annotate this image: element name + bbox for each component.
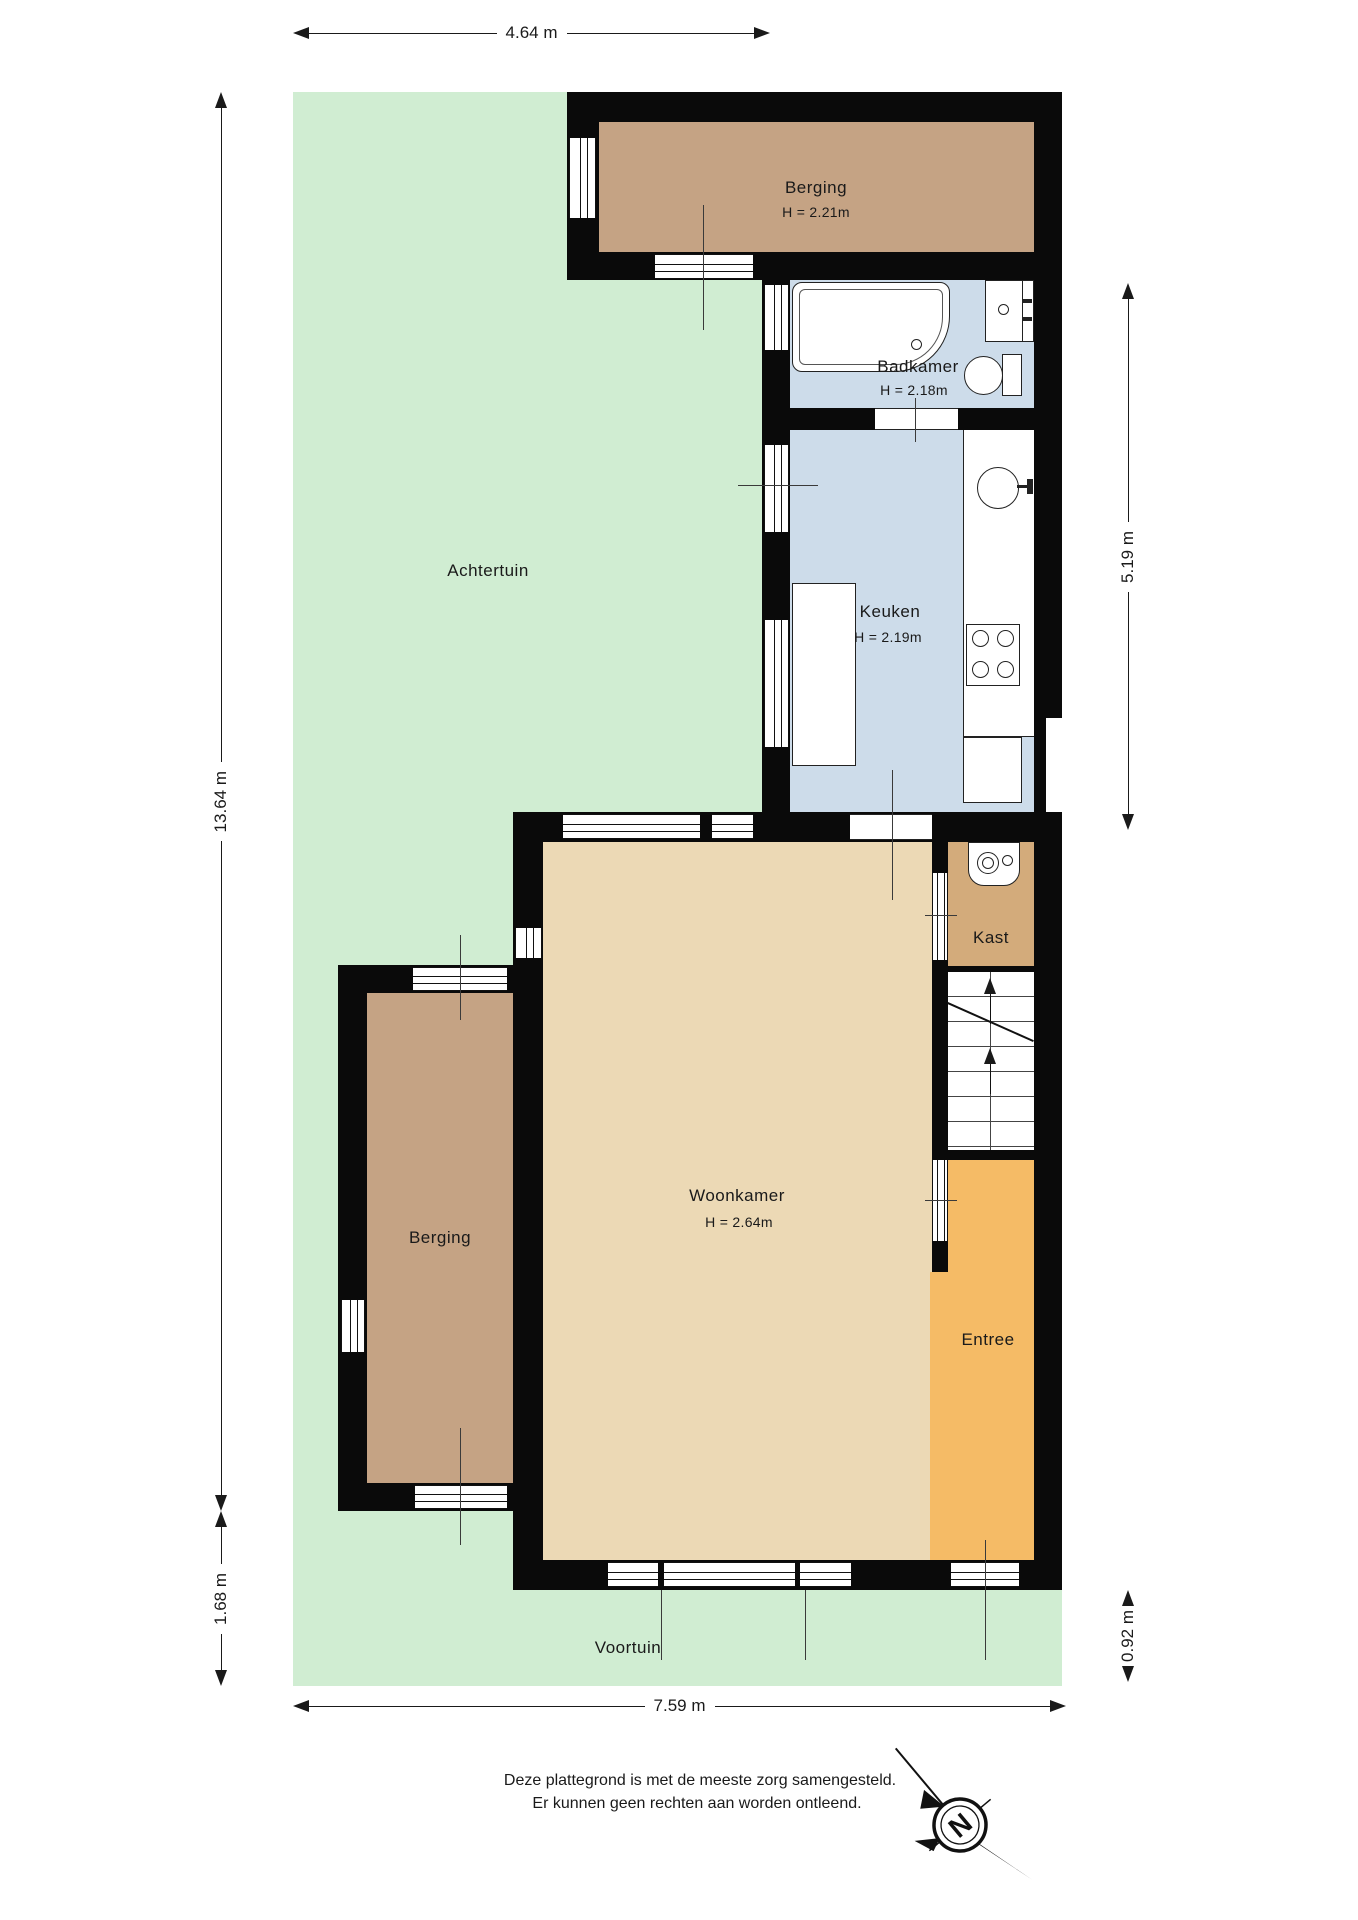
measure-line — [460, 1428, 461, 1545]
disclaimer-line-2: Er kunnen geen rechten aan worden ontlee… — [532, 1795, 861, 1813]
measure-line — [460, 935, 461, 1020]
dimension-left: 13.64 m — [211, 92, 231, 1511]
right-wall-gap — [1046, 718, 1062, 812]
room-label-kast: Kast — [973, 928, 1009, 948]
room-height-badkamer: H = 2.18m — [880, 382, 948, 398]
dimension-top: 4.64 m — [293, 24, 770, 42]
room-label-berging-top: Berging — [785, 178, 847, 198]
dimension-left-bottom: 1.68 m — [211, 1511, 231, 1686]
measure-line — [703, 205, 704, 330]
berging-left-south-window — [415, 1485, 507, 1509]
wall-right-outer — [1034, 92, 1062, 1590]
woonkamer-north-window-1 — [563, 814, 700, 839]
keuken-west-window-2 — [764, 620, 789, 747]
dimension-top-label: 4.64 m — [497, 23, 567, 43]
room-label-entree: Entree — [961, 1330, 1014, 1350]
dimension-right-bottom: 0.92 m — [1118, 1590, 1138, 1686]
kitchen-sink-tap-base — [1027, 479, 1033, 494]
stove — [966, 624, 1020, 686]
stairs-bottom-wall — [948, 1150, 1034, 1160]
washbasin — [985, 280, 1034, 342]
disclaimer-line-1: Deze plattegrond is met de meeste zorg s… — [504, 1772, 896, 1790]
woonkamer-south-window-3 — [800, 1562, 851, 1587]
room-label-achtertuin: Achtertuin — [447, 561, 529, 581]
toilet-bowl — [964, 356, 1003, 395]
keuken-woonkamer-opening — [850, 814, 932, 840]
staircase — [948, 972, 1034, 1150]
kitchen-cabinet — [963, 737, 1022, 803]
kitchen-island — [792, 583, 856, 766]
woonkamer-west-window — [515, 928, 542, 958]
dimension-bottom: 7.59 m — [293, 1697, 1066, 1715]
woonkamer-north-window-2 — [712, 814, 753, 839]
measure-line — [925, 915, 957, 916]
dimension-left-label: 13.64 m — [211, 762, 231, 841]
room-height-woonkamer: H = 2.64m — [705, 1214, 773, 1230]
berging-top-south-window — [655, 254, 753, 279]
measure-line — [738, 485, 818, 486]
kast-bottom-wall — [948, 966, 1034, 972]
berging-left-west-window — [341, 1300, 365, 1352]
floorplan-canvas: Berging H = 2.21m Badkamer H = 2.18m Keu… — [0, 0, 1358, 1920]
dimension-right-label: 5.19 m — [1118, 522, 1138, 592]
keuken-west-window-1 — [764, 445, 789, 532]
measure-line — [925, 1200, 957, 1201]
room-height-keuken: H = 2.19m — [854, 629, 922, 645]
toilet-cistern — [1002, 354, 1022, 396]
woonkamer-south-window-1 — [608, 1562, 658, 1587]
room-label-berging-left: Berging — [409, 1228, 471, 1248]
kitchen-sink — [977, 467, 1019, 509]
room-label-woonkamer: Woonkamer — [689, 1186, 785, 1206]
woonkamer-south-window-2 — [664, 1562, 795, 1587]
measure-line — [985, 1540, 986, 1660]
dimension-right: 5.19 m — [1118, 283, 1138, 830]
dimension-left-bottom-label: 1.68 m — [211, 1564, 231, 1634]
kast-door — [932, 873, 948, 960]
dimension-bottom-label: 7.59 m — [645, 1696, 715, 1716]
washing-machine — [968, 842, 1020, 886]
badkamer-west-window — [764, 285, 789, 350]
dimension-right-bottom-label: 0.92 m — [1118, 1606, 1138, 1666]
room-height-berging-top: H = 2.21m — [782, 204, 850, 220]
room-label-keuken: Keuken — [860, 602, 921, 622]
room-label-voortuin: Voortuin — [595, 1638, 661, 1658]
berging-top-west-window — [569, 138, 596, 218]
room-entree-floor-lower — [930, 1272, 1034, 1560]
measure-line — [892, 770, 893, 900]
badkamer-door-opening — [875, 408, 958, 430]
compass-north-icon: N — [865, 1735, 1055, 1920]
room-label-badkamer: Badkamer — [877, 357, 958, 377]
measure-line — [805, 1590, 806, 1660]
measure-line — [915, 398, 916, 442]
